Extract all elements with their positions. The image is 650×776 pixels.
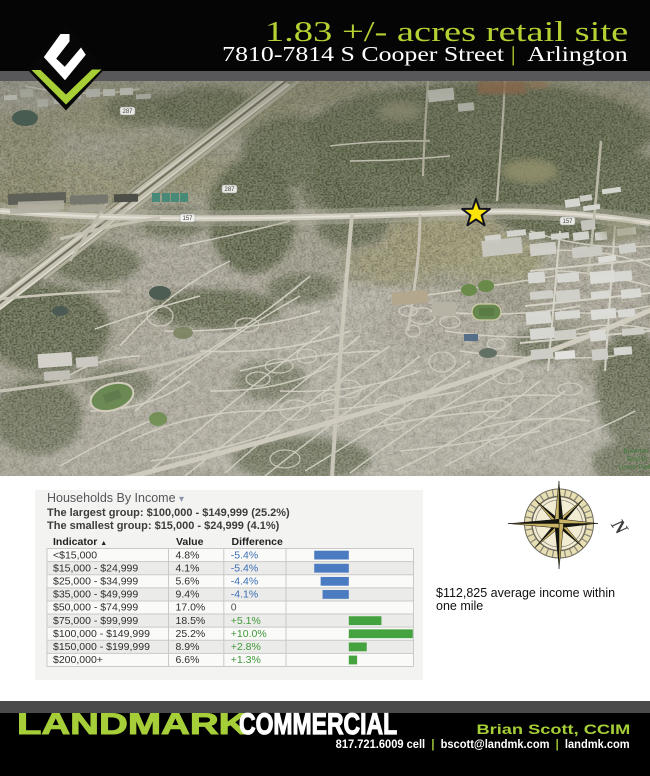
svg-text:5.6%: 5.6% — [176, 576, 200, 588]
svg-text:0: 0 — [231, 602, 237, 614]
svg-text:25.2%: 25.2% — [176, 628, 206, 640]
svg-text:<$15,000: <$15,000 — [53, 549, 97, 561]
svg-text:Linear Park: Linear Park — [618, 464, 650, 471]
svg-text:Branch: Branch — [627, 456, 648, 463]
svg-text:Value: Value — [176, 536, 204, 548]
svg-text:6.6%: 6.6% — [176, 654, 200, 666]
svg-text:+1.3%: +1.3% — [231, 654, 261, 666]
svg-text:+10.0%: +10.0% — [231, 628, 267, 640]
svg-text:Difference: Difference — [232, 536, 284, 548]
svg-text:-4.4%: -4.4% — [231, 576, 258, 588]
svg-text:$50,000 - $74,999: $50,000 - $74,999 — [53, 602, 138, 614]
svg-text:18.5%: 18.5% — [176, 615, 206, 627]
svg-text:-5.4%: -5.4% — [231, 562, 258, 574]
svg-text:$75,000 - $99,999: $75,000 - $99,999 — [53, 615, 138, 627]
svg-text:+2.8%: +2.8% — [231, 641, 261, 653]
svg-text:157: 157 — [562, 219, 573, 225]
svg-text:+5.1%: +5.1% — [231, 615, 261, 627]
svg-text:287: 287 — [122, 109, 133, 115]
svg-text:Indicator ▲: Indicator ▲ — [53, 536, 107, 548]
svg-text:$150,000 - $199,999: $150,000 - $199,999 — [53, 641, 150, 653]
svg-text:$200,000+: $200,000+ — [53, 654, 103, 666]
svg-text:9.4%: 9.4% — [176, 589, 200, 601]
svg-text:Bowman: Bowman — [623, 448, 649, 455]
svg-text:-5.4%: -5.4% — [231, 549, 258, 561]
svg-text:$25,000 - $34,999: $25,000 - $34,999 — [53, 576, 138, 588]
svg-text:287: 287 — [224, 187, 235, 193]
svg-text:17.0%: 17.0% — [176, 602, 206, 614]
svg-text:-4.1%: -4.1% — [231, 589, 258, 601]
svg-text:4.1%: 4.1% — [176, 562, 200, 574]
svg-text:157: 157 — [182, 216, 193, 222]
svg-text:4.8%: 4.8% — [176, 549, 200, 561]
svg-text:N: N — [606, 515, 632, 540]
svg-text:$15,000 - $24,999: $15,000 - $24,999 — [53, 562, 138, 574]
svg-text:$100,000 - $149,999: $100,000 - $149,999 — [53, 628, 150, 640]
svg-text:8.9%: 8.9% — [176, 641, 200, 653]
svg-text:$35,000 - $49,999: $35,000 - $49,999 — [53, 589, 138, 601]
